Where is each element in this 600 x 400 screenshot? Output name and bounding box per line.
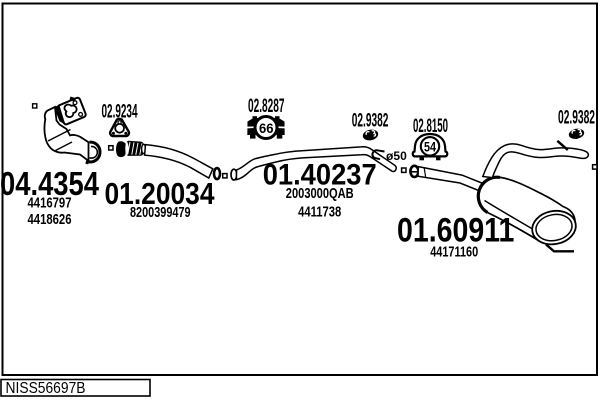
svg-text:02.8287: 02.8287 bbox=[248, 95, 285, 117]
svg-text:2003000QAB: 2003000QAB bbox=[286, 186, 354, 202]
svg-text:02.9382: 02.9382 bbox=[352, 110, 389, 132]
svg-text:4416797: 4416797 bbox=[28, 195, 72, 211]
svg-text:44171160: 44171160 bbox=[430, 245, 478, 261]
svg-text:4418626: 4418626 bbox=[28, 212, 72, 228]
svg-text:54: 54 bbox=[424, 138, 436, 154]
svg-text:NISS56697B: NISS56697B bbox=[6, 380, 86, 397]
svg-text:02.9382: 02.9382 bbox=[558, 107, 595, 129]
svg-text:01.60911: 01.60911 bbox=[397, 211, 514, 249]
svg-text:4411738: 4411738 bbox=[298, 205, 341, 221]
svg-text:ø50: ø50 bbox=[386, 149, 407, 163]
svg-text:66: 66 bbox=[259, 120, 274, 136]
svg-text:8200399479: 8200399479 bbox=[130, 205, 191, 221]
